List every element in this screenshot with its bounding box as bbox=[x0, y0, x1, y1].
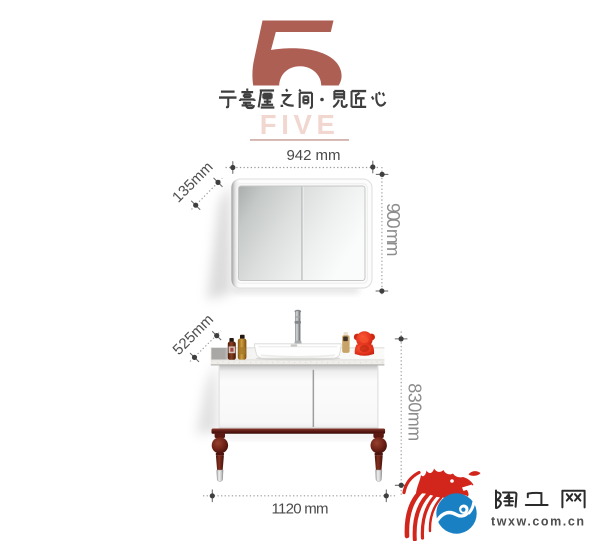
svg-text:942 mm: 942 mm bbox=[287, 147, 341, 164]
svg-text:twxw.com.cn: twxw.com.cn bbox=[491, 515, 586, 529]
svg-text:830mm: 830mm bbox=[405, 383, 425, 441]
svg-text:1120 mm: 1120 mm bbox=[272, 500, 329, 517]
svg-text:525mm: 525mm bbox=[170, 311, 217, 358]
svg-text:135mm: 135mm bbox=[169, 159, 216, 206]
svg-text:900 mm: 900 mm bbox=[383, 203, 403, 256]
svg-text:FIVE: FIVE bbox=[260, 109, 341, 140]
